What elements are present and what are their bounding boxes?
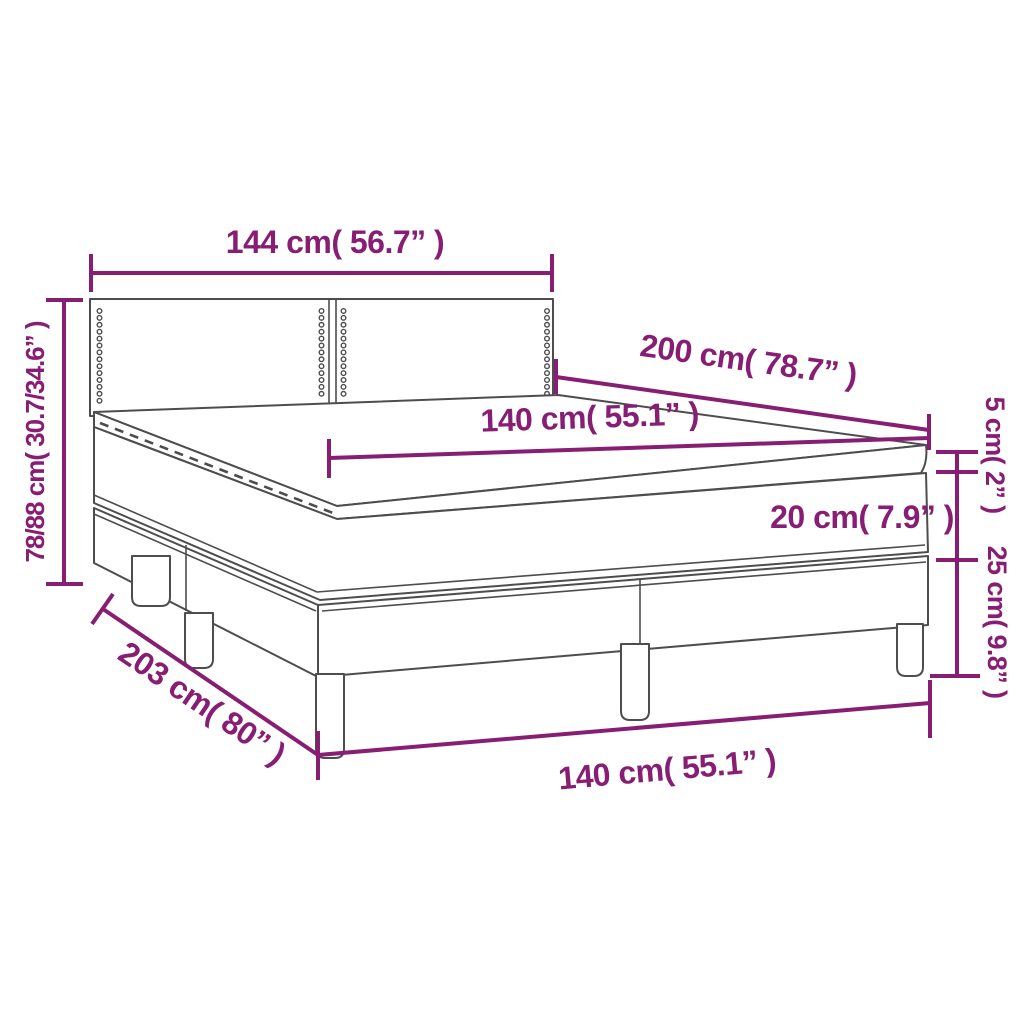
- nailhead-dot: [319, 392, 324, 397]
- nailhead-dot: [97, 323, 102, 328]
- nailhead-dot: [97, 378, 102, 383]
- nailhead-dot: [97, 371, 102, 376]
- nailhead-dot: [341, 364, 346, 369]
- nailhead-dot: [545, 336, 550, 341]
- nailhead-dot: [319, 364, 324, 369]
- nailhead-dot: [341, 336, 346, 341]
- nailhead-dot: [341, 350, 346, 355]
- dim-headboard-width: 144 cm( 56.7” ): [91, 224, 552, 292]
- nailhead-dot: [341, 316, 346, 321]
- nailhead-dot: [319, 371, 324, 376]
- nailhead-dot: [341, 357, 346, 362]
- nailhead-dot: [97, 357, 102, 362]
- nailhead-dot: [545, 343, 550, 348]
- nailhead-dot: [545, 357, 550, 362]
- nailhead-dot: [341, 385, 346, 390]
- dim-bed-height-label: 78/88 cm( 30.7/34.6” ): [20, 321, 50, 562]
- nailhead-dot: [319, 336, 324, 341]
- bed-dimension-diagram: 144 cm( 56.7” ) 78/88 cm( 30.7/34.6” ) 2…: [0, 0, 1024, 1024]
- nailhead-dot: [545, 350, 550, 355]
- nailhead-dot: [341, 392, 346, 397]
- nailhead-dot: [97, 316, 102, 321]
- dim-bed-height: 78/88 cm( 30.7/34.6” ): [20, 300, 83, 584]
- dim-mattress-thickness-label: 20 cm( 7.9” ): [770, 499, 954, 535]
- nailhead-dot: [97, 329, 102, 334]
- dim-base-height-label: 25 cm( 9.8” ): [982, 546, 1012, 699]
- bed-leg-side-middle: [185, 613, 213, 668]
- nailhead-dot: [341, 309, 346, 314]
- nailhead-dot: [341, 323, 346, 328]
- nailhead-dot: [97, 350, 102, 355]
- nailhead-dot: [319, 316, 324, 321]
- nailhead-dot: [319, 350, 324, 355]
- dim-bed-length-label: 200 cm( 78.7” ): [638, 327, 859, 393]
- nailhead-dot: [341, 329, 346, 334]
- nailhead-dot: [341, 343, 346, 348]
- dim-base-width-label: 140 cm( 55.1” ): [557, 742, 778, 797]
- bed-leg-foot-middle: [621, 644, 649, 720]
- nailhead-dot: [545, 316, 550, 321]
- nailhead-dot: [545, 385, 550, 390]
- nailhead-dot: [341, 378, 346, 383]
- dim-headboard-width-label: 144 cm( 56.7” ): [226, 224, 444, 260]
- nailhead-dot: [319, 323, 324, 328]
- nailhead-dot: [545, 309, 550, 314]
- nailhead-dot: [545, 329, 550, 334]
- nailhead-dot: [97, 336, 102, 341]
- dim-base-length-tick-top: [92, 594, 113, 624]
- nailhead-dot: [341, 371, 346, 376]
- dim-mattress-width-label: 140 cm( 55.1” ): [480, 395, 700, 439]
- nailhead-dot: [319, 357, 324, 362]
- dim-topper-thickness-label: 5 cm( 2” ): [980, 396, 1010, 513]
- bed-leg-foot-right: [897, 624, 923, 676]
- nailhead-dot: [319, 385, 324, 390]
- nailhead-dot: [319, 378, 324, 383]
- nailhead-dot: [97, 364, 102, 369]
- nailhead-dot: [97, 343, 102, 348]
- nailhead-dot: [319, 309, 324, 314]
- bed-leg-back: [132, 556, 170, 606]
- bed-leg-front-corner: [316, 674, 344, 758]
- nailhead-dot: [97, 385, 102, 390]
- nailhead-dot: [545, 371, 550, 376]
- nailhead-dot: [97, 398, 102, 403]
- diagram-canvas: 144 cm( 56.7” ) 78/88 cm( 30.7/34.6” ) 2…: [0, 0, 1024, 1024]
- nailhead-dot: [319, 329, 324, 334]
- nailhead-dot: [545, 364, 550, 369]
- nailhead-dot: [545, 378, 550, 383]
- nailhead-dot: [97, 392, 102, 397]
- nailhead-dot: [545, 323, 550, 328]
- nailhead-dot: [319, 343, 324, 348]
- nailhead-dot: [97, 309, 102, 314]
